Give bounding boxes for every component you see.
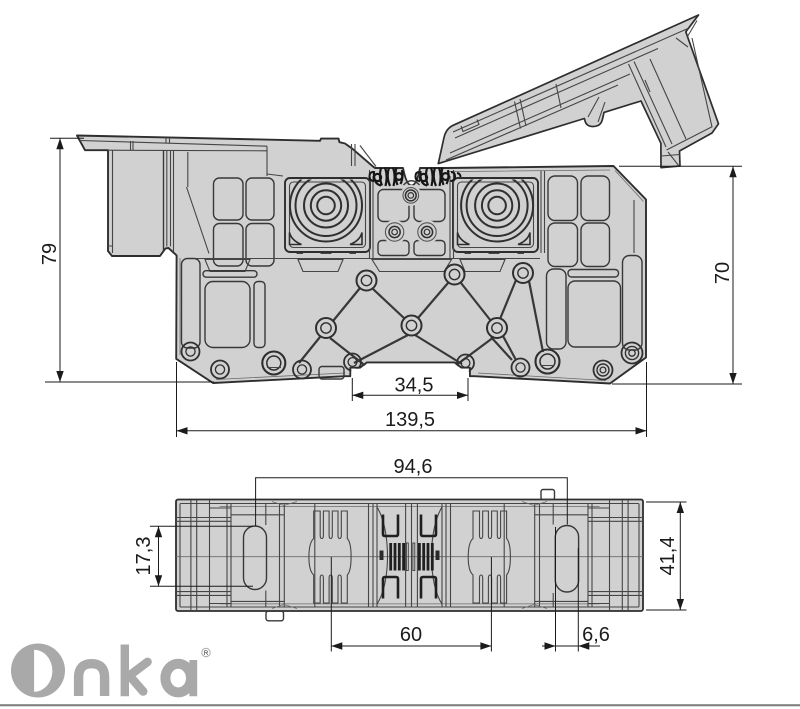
svg-text:R: R bbox=[204, 651, 209, 657]
svg-text:6,6: 6,6 bbox=[582, 624, 610, 646]
svg-text:139,5: 139,5 bbox=[385, 409, 435, 431]
svg-text:79: 79 bbox=[39, 243, 61, 265]
svg-text:34,5: 34,5 bbox=[395, 375, 434, 397]
svg-text:60: 60 bbox=[400, 624, 422, 646]
svg-text:17,3: 17,3 bbox=[133, 537, 155, 576]
svg-text:41,4: 41,4 bbox=[657, 537, 679, 576]
svg-text:94,6: 94,6 bbox=[394, 456, 433, 478]
svg-text:70: 70 bbox=[712, 262, 734, 284]
